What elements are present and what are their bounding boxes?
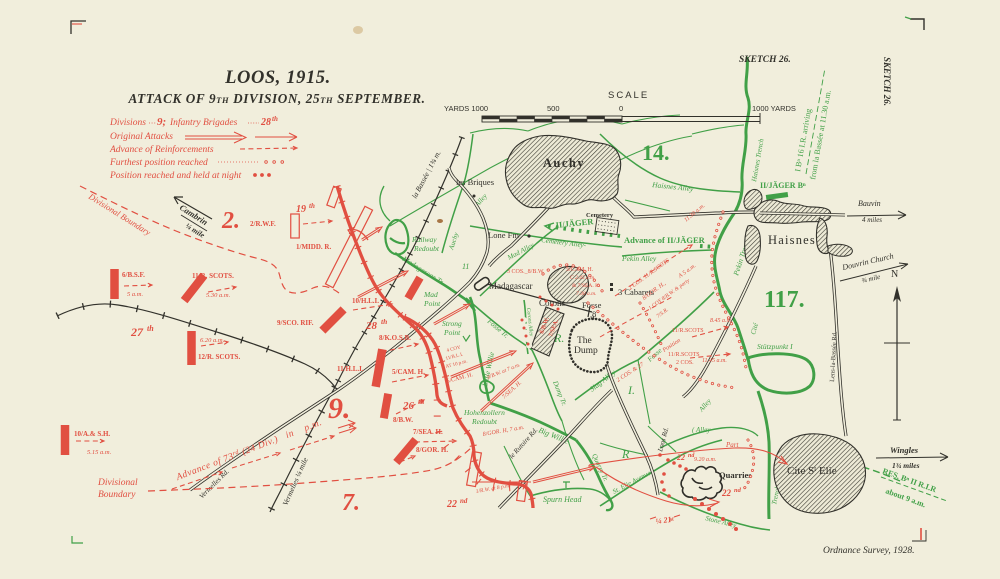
svg-text:7/SEA. H.: 7/SEA. H.: [413, 428, 443, 436]
svg-text:th: th: [147, 324, 154, 333]
svg-text:th: th: [272, 115, 278, 123]
svg-text:Divisional: Divisional: [97, 478, 138, 488]
svg-text:Pekin Alley: Pekin Alley: [621, 254, 657, 263]
svg-text:11/H.L.I.: 11/H.L.I.: [337, 365, 364, 373]
svg-text:Cemetery: Cemetery: [586, 212, 614, 219]
svg-text:Railway: Railway: [411, 235, 437, 244]
svg-text:8/B.W.: 8/B.W.: [393, 416, 413, 424]
svg-text:5.15 a.m.: 5.15 a.m.: [87, 449, 112, 456]
svg-text:2 COS.: 2 COS.: [676, 360, 694, 366]
svg-text:2/R.W.F.: 2/R.W.F.: [250, 220, 276, 228]
svg-text:Haisnes: Haisnes: [768, 233, 816, 247]
svg-text:28: 28: [260, 117, 271, 128]
svg-text:8/GOR. H.: 8/GOR. H.: [416, 446, 448, 454]
svg-text:LOOS, 1915.: LOOS, 1915.: [224, 68, 331, 88]
svg-text:Redoubt: Redoubt: [413, 244, 440, 253]
svg-text:500: 500: [547, 104, 560, 113]
svg-text:Wingles: Wingles: [890, 445, 919, 455]
svg-text:11/R.SCOTS: 11/R.SCOTS: [672, 328, 704, 334]
svg-text:Point: Point: [443, 328, 461, 337]
svg-text:th: th: [309, 202, 315, 210]
svg-text:9.: 9.: [328, 392, 351, 425]
svg-text:Original Attacks: Original Attacks: [110, 132, 173, 142]
svg-text:Madagascar: Madagascar: [489, 281, 532, 291]
svg-text:22: 22: [721, 488, 732, 498]
svg-text:YARDS 1000: YARDS 1000: [444, 104, 488, 113]
svg-text:II/JÄGER Bⁿ: II/JÄGER Bⁿ: [760, 181, 806, 190]
svg-text:Stützpunkt I: Stützpunkt I: [757, 342, 793, 351]
svg-text:Bauvin: Bauvin: [858, 199, 881, 208]
svg-text:Dump: Dump: [574, 346, 598, 356]
svg-text:th: th: [381, 317, 387, 326]
svg-text:5.30 a.m.: 5.30 a.m.: [206, 292, 231, 299]
svg-text:9/SCO. RIF.: 9/SCO. RIF.: [277, 319, 314, 327]
svg-text:1¾ miles: 1¾ miles: [892, 461, 920, 470]
svg-text:5/CAM. H.: 5/CAM. H.: [392, 368, 425, 376]
svg-text:Auchy: Auchy: [543, 156, 585, 170]
svg-text:Furthest position reached: Furthest position reached: [109, 158, 208, 168]
svg-text:nd: nd: [734, 487, 742, 494]
svg-text:10/H.L.I.: 10/H.L.I.: [352, 297, 379, 305]
svg-text:C 2.45 a.m.: C 2.45 a.m.: [570, 274, 596, 281]
svg-text:Cite St Elie: Cite St Elie: [787, 465, 837, 477]
svg-text:Advance of II/JÄGER: Advance of II/JÄGER: [624, 235, 706, 245]
svg-text:ATTACK OF 9TH DIVISION, 25TH S: ATTACK OF 9TH DIVISION, 25TH SEPTEMBER.: [127, 91, 425, 106]
svg-text:3 COS._8/B.W.: 3 COS._8/B.W.: [507, 269, 545, 275]
svg-text:2.: 2.: [221, 208, 240, 234]
svg-text:The: The: [577, 336, 592, 346]
svg-text:19: 19: [296, 204, 306, 215]
svg-text:14.: 14.: [642, 140, 670, 165]
svg-text:6/B.S.F.: 6/B.S.F.: [122, 271, 145, 279]
svg-text:0: 0: [619, 104, 623, 113]
svg-text:Lone Fm: Lone Fm: [488, 230, 519, 240]
svg-text:Redoubt: Redoubt: [471, 417, 498, 426]
svg-text:22: 22: [446, 499, 457, 510]
svg-text:Spurn Head: Spurn Head: [543, 495, 582, 504]
svg-text:9.20 a.m.: 9.20 a.m.: [694, 457, 716, 463]
svg-text:11: 11: [462, 262, 469, 271]
svg-text:nd: nd: [460, 497, 468, 505]
svg-text:SKETCH 26.: SKETCH 26.: [882, 57, 892, 106]
svg-text:7.: 7.: [342, 490, 360, 516]
svg-text:Part: Part: [725, 441, 740, 449]
svg-text:Mad: Mad: [423, 290, 438, 299]
svg-text:117.: 117.: [764, 287, 805, 313]
svg-text:1000 YARDS: 1000 YARDS: [752, 104, 796, 113]
svg-text:Quarries: Quarries: [719, 470, 752, 480]
svg-text:Point: Point: [423, 299, 441, 308]
svg-text:Boundary: Boundary: [98, 490, 136, 500]
svg-text:Infantry Brigades: Infantry Brigades: [169, 117, 238, 128]
svg-text:11/R. SCOTS.: 11/R. SCOTS.: [192, 272, 234, 280]
svg-text:7.30 a.m.: 7.30 a.m.: [576, 291, 596, 297]
svg-text:Advance of Reinforcements: Advance of Reinforcements: [109, 144, 214, 155]
svg-text:Corons: Corons: [539, 298, 566, 308]
svg-text:22: 22: [676, 453, 685, 462]
svg-text:Position reached and held at n: Position reached and held at night: [109, 171, 242, 181]
svg-text:( Alley: ( Alley: [692, 426, 711, 434]
svg-text:4 miles: 4 miles: [862, 216, 882, 224]
svg-text:11.45 a.m.: 11.45 a.m.: [702, 357, 727, 364]
svg-text:10/A.& S.H.: 10/A.& S.H.: [74, 430, 110, 438]
svg-text:I.: I.: [627, 383, 635, 397]
svg-text:Strong: Strong: [442, 319, 462, 328]
svg-text:1/MIDD. R.: 1/MIDD. R.: [296, 243, 331, 251]
svg-text:27: 27: [130, 325, 144, 339]
svg-text:les Briques: les Briques: [456, 177, 494, 187]
svg-text:5 a.m.: 5 a.m.: [127, 291, 143, 298]
svg-text:SKETCH 26.: SKETCH 26.: [739, 55, 791, 65]
svg-text:Ordnance Survey, 1928.: Ordnance Survey, 1928.: [823, 546, 914, 556]
svg-text:8.45 a.m.: 8.45 a.m.: [710, 317, 732, 324]
svg-text:SCALE: SCALE: [608, 90, 649, 101]
svg-text:12/R. SCOTS.: 12/R. SCOTS.: [198, 353, 240, 361]
svg-text:28: 28: [365, 320, 378, 332]
svg-text:& 7/SEA. H.: & 7/SEA. H.: [572, 283, 601, 289]
svg-text:8/K.O.S.B.: 8/K.O.S.B.: [379, 334, 411, 342]
svg-text:9;: 9;: [157, 116, 166, 128]
svg-text:N: N: [891, 269, 898, 280]
svg-text:8: 8: [592, 309, 596, 319]
svg-text:Divisions: Divisions: [109, 118, 146, 128]
